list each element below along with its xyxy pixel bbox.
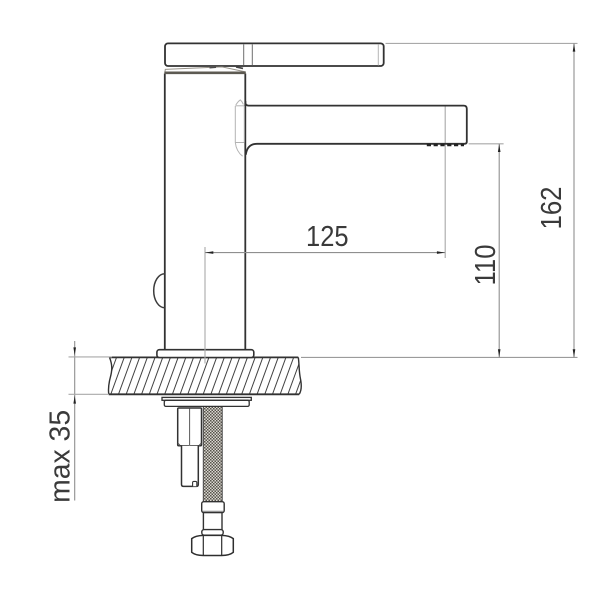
svg-text:max 35: max 35 [45,410,77,503]
svg-text:110: 110 [470,245,502,286]
svg-text:125: 125 [306,221,349,253]
svg-text:162: 162 [536,187,568,230]
